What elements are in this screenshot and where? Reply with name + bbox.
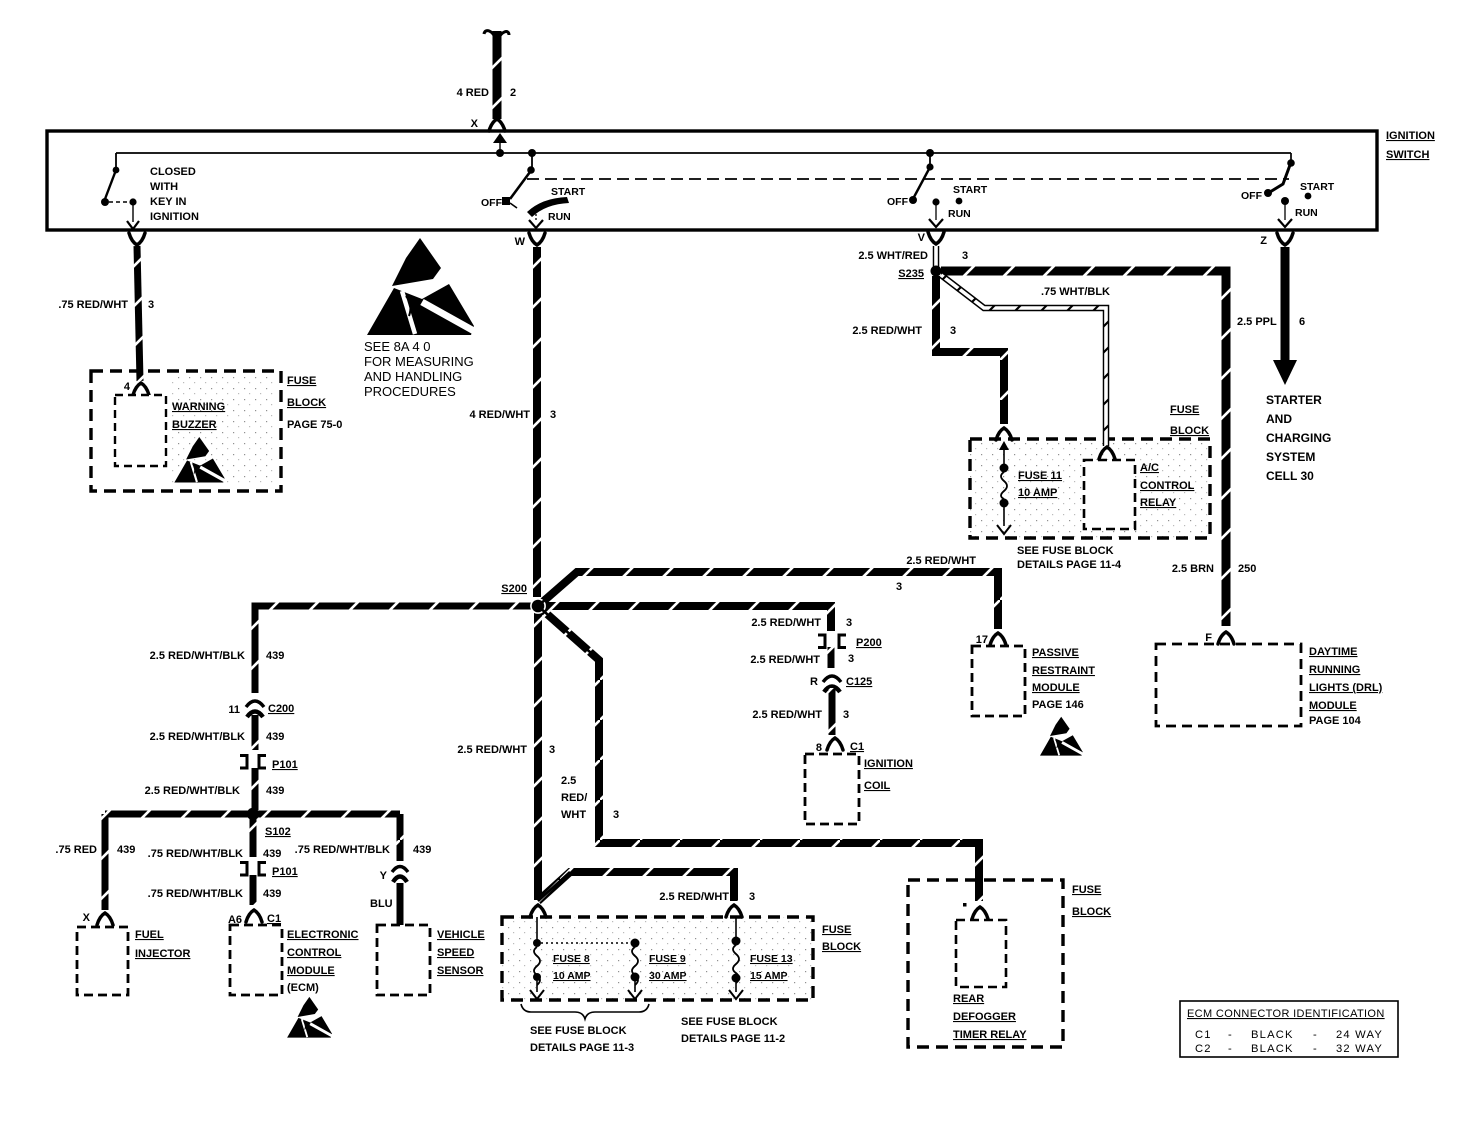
- svg-text:X: X: [471, 118, 479, 130]
- svg-text:2.5 RED/WHT: 2.5 RED/WHT: [457, 744, 527, 756]
- svg-text:STARTER: STARTER: [1266, 393, 1322, 407]
- svg-text:250: 250: [1238, 563, 1256, 575]
- svg-text:BLACK: BLACK: [1251, 1029, 1294, 1041]
- svg-text:4 RED: 4 RED: [457, 87, 489, 99]
- svg-text:RESTRAINT: RESTRAINT: [1032, 665, 1095, 677]
- svg-text:AND: AND: [1266, 412, 1292, 426]
- svg-text:439: 439: [266, 731, 284, 743]
- svg-text:FUSE: FUSE: [822, 924, 851, 936]
- svg-text:.75 RED: .75 RED: [55, 844, 97, 856]
- svg-text:24 WAY: 24 WAY: [1336, 1029, 1383, 1041]
- svg-text:SEE FUSE BLOCK: SEE FUSE BLOCK: [1017, 545, 1114, 557]
- svg-text:LIGHTS (DRL): LIGHTS (DRL): [1309, 682, 1383, 694]
- svg-text:SEE FUSE BLOCK: SEE FUSE BLOCK: [530, 1025, 627, 1037]
- svg-text:439: 439: [263, 888, 281, 900]
- svg-text:OFF: OFF: [887, 196, 909, 208]
- svg-text:RED/: RED/: [561, 792, 587, 804]
- svg-text:C200: C200: [268, 703, 294, 715]
- svg-text:TIMER RELAY: TIMER RELAY: [953, 1029, 1027, 1041]
- svg-text:PROCEDURES: PROCEDURES: [364, 384, 456, 399]
- svg-text:OFF: OFF: [1241, 190, 1263, 202]
- svg-text:Z: Z: [1260, 235, 1267, 247]
- svg-text:.75 RED/WHT/BLK: .75 RED/WHT/BLK: [148, 888, 243, 900]
- svg-text:BLOCK: BLOCK: [1170, 425, 1209, 437]
- svg-text:A/C: A/C: [1140, 462, 1159, 474]
- svg-text:ECM CONNECTOR IDENTIFICATION: ECM CONNECTOR IDENTIFICATION: [1187, 1008, 1385, 1020]
- svg-text:BLOCK: BLOCK: [822, 941, 861, 953]
- svg-text:RUN: RUN: [948, 208, 971, 220]
- svg-text:V: V: [918, 232, 926, 244]
- svg-text:3: 3: [843, 709, 849, 721]
- svg-text:S235: S235: [898, 268, 924, 280]
- svg-text:FUSE 11: FUSE 11: [1018, 470, 1062, 482]
- svg-text:C2: C2: [1195, 1043, 1212, 1055]
- svg-text:FUSE: FUSE: [1072, 884, 1101, 896]
- svg-text:3: 3: [896, 581, 902, 593]
- svg-text:RUN: RUN: [548, 211, 571, 223]
- svg-text:DAYTIME: DAYTIME: [1309, 646, 1358, 658]
- svg-text:P101: P101: [272, 866, 298, 878]
- svg-text:SPEED: SPEED: [437, 947, 474, 959]
- svg-text:2.5 RED/WHT: 2.5 RED/WHT: [752, 709, 822, 721]
- svg-text:AND HANDLING: AND HANDLING: [364, 369, 462, 384]
- svg-text:4: 4: [124, 381, 131, 393]
- svg-text:SEE FUSE BLOCK: SEE FUSE BLOCK: [681, 1016, 778, 1028]
- svg-text:C1: C1: [267, 913, 281, 925]
- svg-text:FUEL: FUEL: [135, 929, 164, 941]
- svg-text:CLOSED: CLOSED: [150, 166, 196, 178]
- svg-text:2.5 RED/WHT/BLK: 2.5 RED/WHT/BLK: [150, 650, 245, 662]
- svg-text:CONTROL: CONTROL: [1140, 480, 1195, 492]
- svg-text:COIL: COIL: [864, 780, 891, 792]
- svg-text:C125: C125: [846, 676, 872, 688]
- svg-text:439: 439: [413, 844, 431, 856]
- svg-text:PASSIVE: PASSIVE: [1032, 647, 1079, 659]
- svg-text:FUSE 9: FUSE 9: [649, 953, 686, 965]
- svg-text:FUSE 13: FUSE 13: [750, 953, 793, 965]
- svg-text:START: START: [953, 184, 988, 196]
- svg-text:10 AMP: 10 AMP: [1018, 487, 1057, 499]
- svg-text:2: 2: [510, 87, 516, 99]
- svg-text:439: 439: [266, 785, 284, 797]
- svg-text:IGNITION: IGNITION: [1386, 130, 1435, 142]
- svg-text:WITH: WITH: [150, 181, 178, 193]
- svg-text:2.5 RED/WHT: 2.5 RED/WHT: [659, 891, 729, 903]
- svg-text:15 AMP: 15 AMP: [750, 970, 788, 982]
- svg-text:BUZZER: BUZZER: [172, 419, 217, 431]
- svg-text:IGNITION: IGNITION: [864, 758, 913, 770]
- svg-text:2.5 BRN: 2.5 BRN: [1172, 563, 1214, 575]
- svg-text:DEFOGGER: DEFOGGER: [953, 1011, 1016, 1023]
- svg-text:2.5 RED/WHT: 2.5 RED/WHT: [750, 654, 820, 666]
- svg-text:DETAILS PAGE 11-4: DETAILS PAGE 11-4: [1017, 559, 1122, 571]
- svg-text:INJECTOR: INJECTOR: [135, 948, 190, 960]
- svg-text:(ECM): (ECM): [287, 982, 319, 994]
- svg-text:SYSTEM: SYSTEM: [1266, 450, 1315, 464]
- svg-text:2.5 WHT/RED: 2.5 WHT/RED: [858, 250, 928, 262]
- svg-text:FUSE: FUSE: [287, 375, 316, 387]
- svg-text:BLOCK: BLOCK: [1072, 906, 1111, 918]
- svg-text:-: -: [1313, 1043, 1318, 1055]
- svg-text:PAGE 146: PAGE 146: [1032, 699, 1084, 711]
- svg-text:W: W: [515, 236, 526, 248]
- svg-text:DETAILS PAGE 11-3: DETAILS PAGE 11-3: [530, 1042, 634, 1054]
- svg-text:X: X: [83, 912, 91, 924]
- svg-text:3: 3: [846, 617, 852, 629]
- svg-text:RUNNING: RUNNING: [1309, 664, 1360, 676]
- svg-text:OFF: OFF: [481, 197, 503, 209]
- svg-text:439: 439: [117, 844, 135, 856]
- svg-text:3: 3: [613, 809, 619, 821]
- svg-text:CELL 30: CELL 30: [1266, 469, 1314, 483]
- svg-text:3: 3: [550, 409, 556, 421]
- svg-text:CHARGING: CHARGING: [1266, 431, 1331, 445]
- svg-text:FOR MEASURING: FOR MEASURING: [364, 354, 474, 369]
- svg-text:3: 3: [950, 325, 956, 337]
- svg-text:Y: Y: [380, 870, 388, 882]
- svg-text:8: 8: [816, 742, 822, 754]
- svg-text:MODULE: MODULE: [1309, 700, 1357, 712]
- svg-text:C1: C1: [1195, 1029, 1212, 1041]
- svg-text:C1: C1: [850, 741, 864, 753]
- svg-text:VEHICLE: VEHICLE: [437, 929, 485, 941]
- svg-text:.75 RED/WHT/BLK: .75 RED/WHT/BLK: [148, 848, 243, 860]
- svg-text:2.5 RED/WHT/BLK: 2.5 RED/WHT/BLK: [150, 731, 245, 743]
- svg-text:P200: P200: [856, 637, 882, 649]
- svg-text:KEY IN: KEY IN: [150, 196, 187, 208]
- svg-text:START: START: [1300, 181, 1335, 193]
- svg-text:ELECTRONIC: ELECTRONIC: [287, 929, 359, 941]
- svg-text:-: -: [1228, 1029, 1233, 1041]
- svg-text:-: -: [1313, 1029, 1318, 1041]
- svg-text:REAR: REAR: [953, 993, 984, 1005]
- svg-text:30 AMP: 30 AMP: [649, 970, 687, 982]
- svg-text:439: 439: [263, 848, 281, 860]
- svg-text:BLU: BLU: [370, 898, 393, 910]
- svg-text:3: 3: [549, 744, 555, 756]
- svg-text:PAGE 75-0: PAGE 75-0: [287, 419, 342, 431]
- svg-text:-: -: [1228, 1043, 1233, 1055]
- svg-text:BLOCK: BLOCK: [287, 397, 326, 409]
- svg-text:10 AMP: 10 AMP: [553, 970, 591, 982]
- svg-text:4 RED/WHT: 4 RED/WHT: [470, 409, 531, 421]
- svg-text:PAGE 104: PAGE 104: [1309, 715, 1362, 727]
- svg-text:2.5 RED/WHT: 2.5 RED/WHT: [906, 555, 976, 567]
- svg-text:RELAY: RELAY: [1140, 497, 1177, 509]
- svg-text:2.5 RED/WHT: 2.5 RED/WHT: [852, 325, 922, 337]
- svg-text:17: 17: [976, 634, 988, 646]
- svg-text:DETAILS PAGE 11-2: DETAILS PAGE 11-2: [681, 1033, 785, 1045]
- svg-text:3: 3: [962, 250, 968, 262]
- svg-text:439: 439: [266, 650, 284, 662]
- svg-text:3: 3: [749, 891, 755, 903]
- svg-text:MODULE: MODULE: [1032, 682, 1080, 694]
- svg-text:2.5 RED/WHT/BLK: 2.5 RED/WHT/BLK: [145, 785, 240, 797]
- svg-text:IGNITION: IGNITION: [150, 211, 199, 223]
- svg-text:CONTROL: CONTROL: [287, 947, 342, 959]
- svg-text:P101: P101: [272, 759, 298, 771]
- svg-text:.75 RED/WHT: .75 RED/WHT: [58, 299, 128, 311]
- svg-text:2.5 RED/WHT: 2.5 RED/WHT: [751, 617, 821, 629]
- svg-text:.75 RED/WHT/BLK: .75 RED/WHT/BLK: [295, 844, 390, 856]
- svg-text:S200: S200: [501, 583, 527, 595]
- svg-text:3: 3: [848, 653, 854, 665]
- svg-text:SENSOR: SENSOR: [437, 965, 484, 977]
- svg-text:2.5: 2.5: [561, 775, 576, 787]
- svg-text:SWITCH: SWITCH: [1386, 149, 1429, 161]
- svg-text:WHT: WHT: [561, 809, 586, 821]
- svg-text:F: F: [1205, 632, 1212, 644]
- svg-text:RUN: RUN: [1295, 207, 1318, 219]
- svg-text:FUSE 8: FUSE 8: [553, 953, 590, 965]
- svg-text:START: START: [551, 186, 586, 198]
- svg-text:SEE 8A 4 0: SEE 8A 4 0: [364, 339, 431, 354]
- svg-text:R: R: [810, 676, 818, 688]
- svg-text:WARNING: WARNING: [172, 401, 225, 413]
- svg-text:.75 WHT/BLK: .75 WHT/BLK: [1041, 286, 1110, 298]
- svg-text:S102: S102: [265, 826, 291, 838]
- svg-text:11: 11: [228, 704, 240, 716]
- svg-text:FUSE: FUSE: [1170, 404, 1199, 416]
- svg-text:BLACK: BLACK: [1251, 1043, 1294, 1055]
- svg-text:6: 6: [1299, 316, 1305, 328]
- svg-text:MODULE: MODULE: [287, 965, 335, 977]
- svg-text:3: 3: [148, 299, 154, 311]
- svg-text:2.5 PPL: 2.5 PPL: [1237, 316, 1277, 328]
- svg-text:32 WAY: 32 WAY: [1336, 1043, 1383, 1055]
